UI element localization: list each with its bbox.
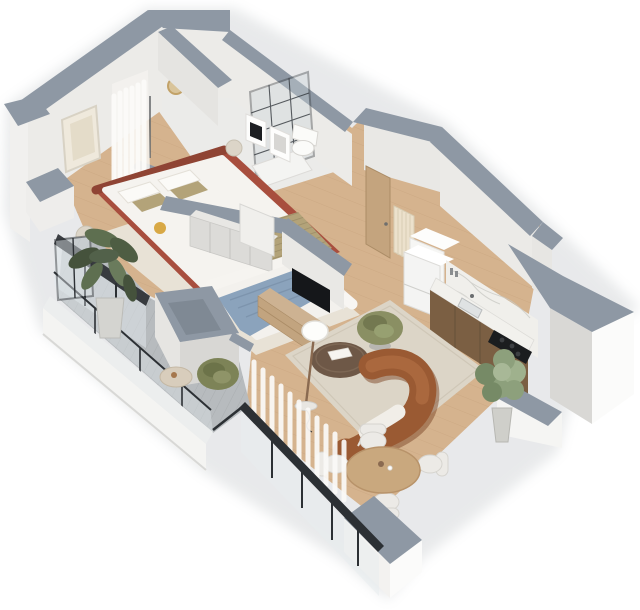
table-cup <box>388 466 392 470</box>
entry-door <box>366 166 390 258</box>
nightstand-right <box>226 140 242 156</box>
balcony-side-table <box>160 367 192 387</box>
kitchen-plant-pot <box>492 408 512 442</box>
kitchen-faucet <box>470 294 474 298</box>
plant-pot <box>96 298 124 338</box>
table-vase <box>378 461 384 467</box>
floor-plan-render <box>0 0 640 610</box>
yellow-pouf <box>154 222 166 234</box>
dining-chair-top <box>360 424 386 450</box>
door-handle <box>384 222 388 226</box>
toilet-bowl <box>292 141 314 156</box>
balcony-armchair <box>197 358 239 390</box>
dining-table <box>346 447 420 493</box>
apartment-3d-plan <box>0 0 640 610</box>
